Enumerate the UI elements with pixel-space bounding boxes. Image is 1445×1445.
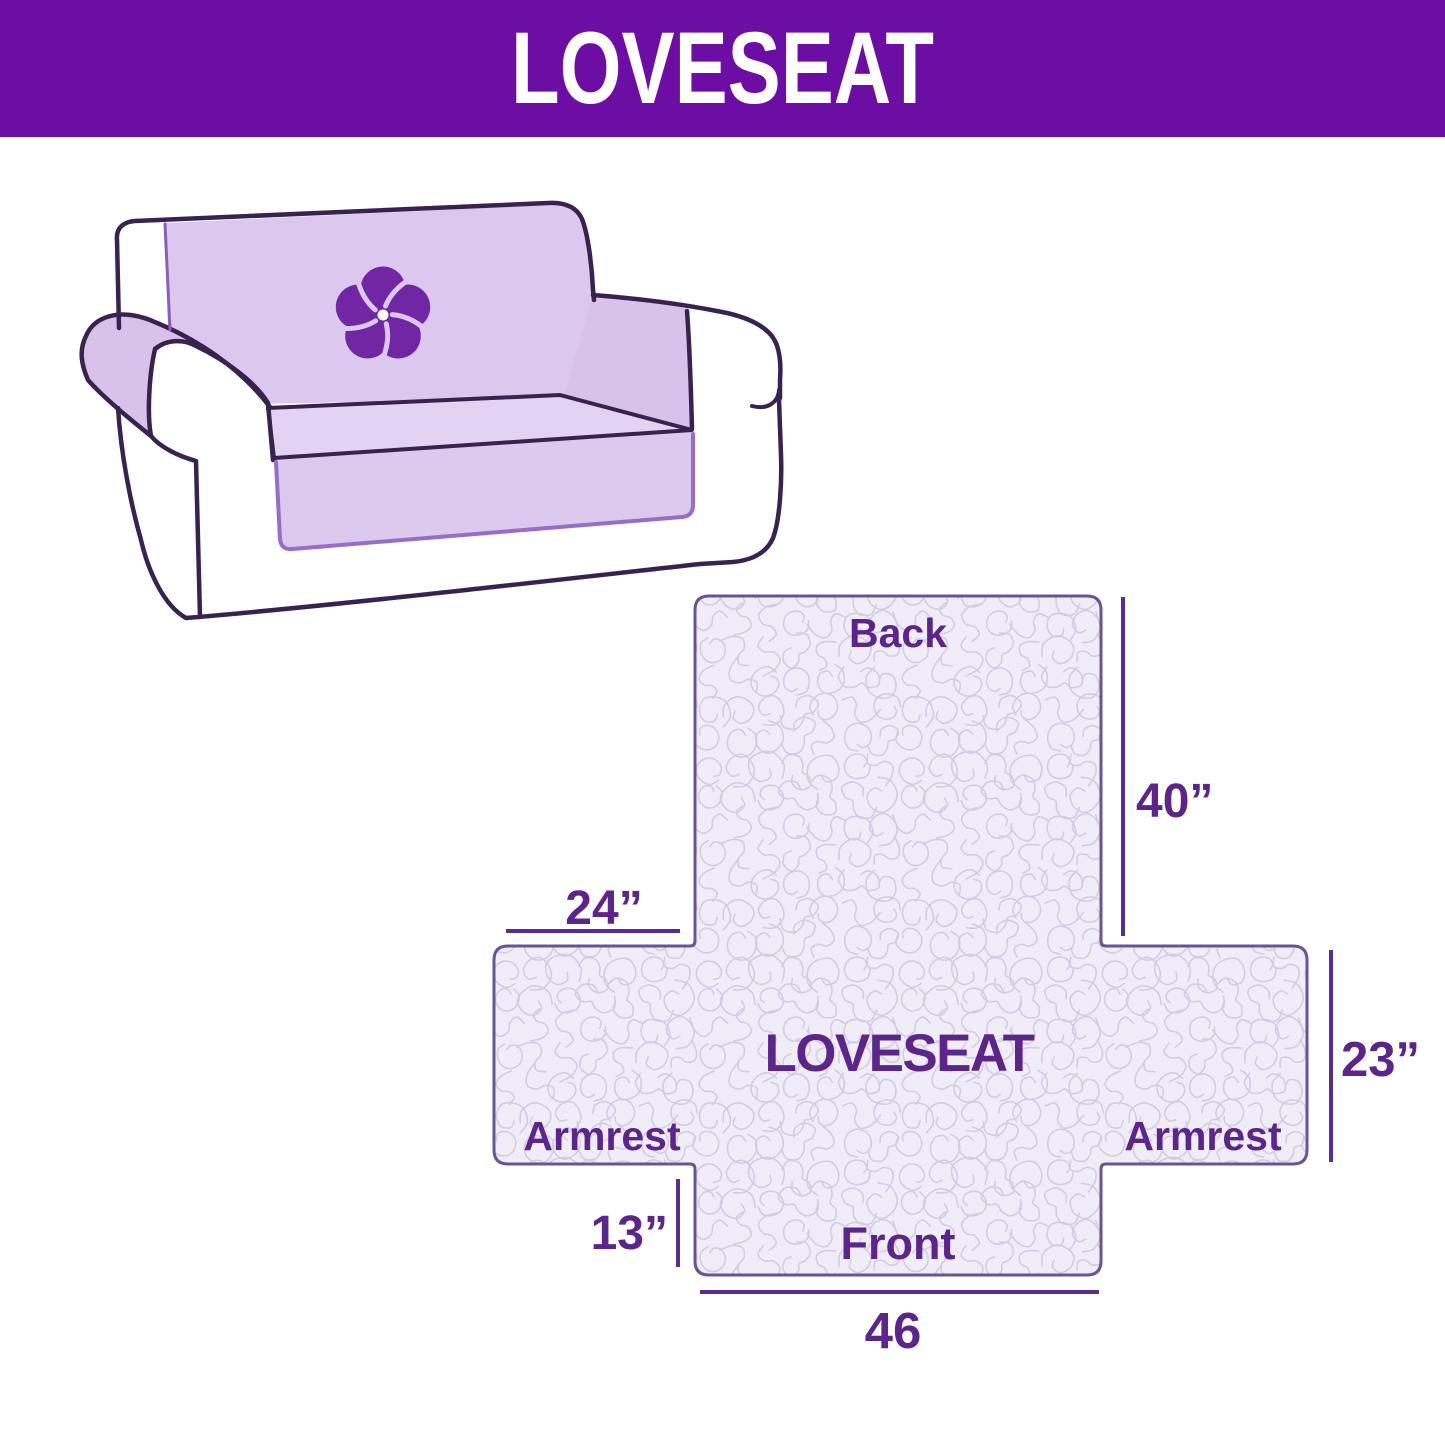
svg-text:LOVESEAT: LOVESEAT — [765, 1024, 1035, 1083]
svg-text:24”: 24” — [565, 882, 642, 935]
svg-text:40”: 40” — [1136, 775, 1213, 828]
svg-text:Back: Back — [849, 610, 947, 656]
svg-text:Front: Front — [841, 1218, 956, 1269]
svg-text:Armrest: Armrest — [523, 1113, 681, 1159]
svg-text:13”: 13” — [591, 1207, 668, 1260]
svg-text:Armrest: Armrest — [1124, 1113, 1282, 1159]
svg-text:23”: 23” — [1341, 1033, 1420, 1087]
svg-text:46: 46 — [865, 1302, 922, 1359]
